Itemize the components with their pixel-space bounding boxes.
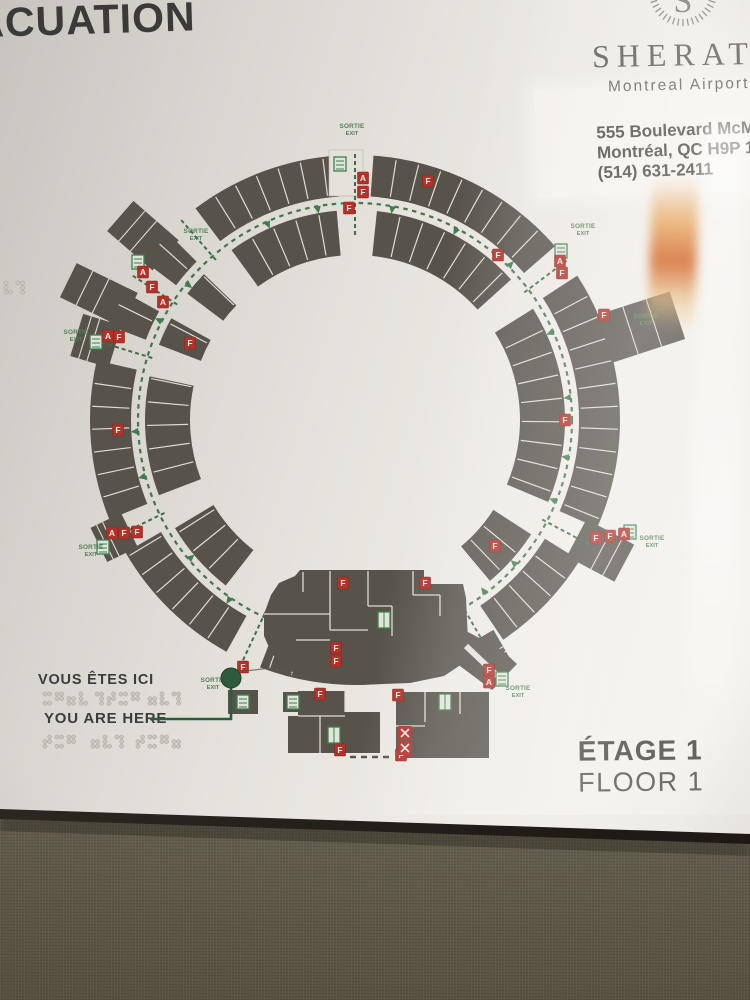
direction-arrow-icon (563, 394, 571, 402)
safety-marker: F (599, 309, 610, 321)
svg-text:F: F (116, 332, 121, 342)
svg-text:F: F (115, 425, 120, 435)
svg-text:F: F (395, 690, 400, 700)
safety-marker: F (484, 664, 495, 676)
safety-marker: A (555, 255, 566, 267)
evacuation-sign-photo: ÉVACUATION SHERATON Montreal Airport Hot… (0, 0, 750, 1000)
svg-text:F: F (340, 578, 345, 588)
exit-label: SORTIEEXIT (571, 223, 597, 237)
room-band-segment (145, 376, 201, 495)
elevator-icon (328, 727, 340, 743)
svg-text:F: F (593, 533, 598, 543)
elevator-icon (439, 694, 451, 710)
svg-text:F: F (317, 689, 322, 699)
room-band-segment (187, 274, 236, 321)
safety-marker: F (132, 526, 143, 538)
safety-marker: F (338, 577, 349, 589)
svg-text:A: A (160, 297, 166, 307)
direction-arrow-icon (478, 585, 488, 595)
exit-label: SORTIEEXIT (640, 535, 666, 549)
safety-marker: A (138, 266, 149, 278)
exit-label: SORTIEEXIT (184, 228, 210, 242)
svg-text:A: A (105, 331, 111, 341)
safety-marker: A (619, 528, 630, 540)
svg-text:F: F (149, 282, 154, 292)
exit-label: SORTIEEXIT (340, 123, 366, 137)
svg-text:F: F (333, 656, 338, 666)
svg-text:F: F (425, 176, 430, 186)
safety-marker: F (113, 424, 124, 436)
safety-marker: A (103, 330, 114, 342)
exit-label: SORTIEEXIT (506, 685, 532, 699)
room-band-segment (495, 309, 565, 502)
stairs-icon (496, 672, 508, 686)
safety-marker: F (420, 577, 431, 589)
safety-marker: F (114, 331, 125, 343)
safety-marker: A (158, 296, 169, 308)
svg-text:F: F (607, 531, 612, 541)
sheraton-monogram: S (674, 0, 693, 20)
safety-marker: A (358, 172, 369, 184)
svg-text:F: F (486, 665, 491, 675)
svg-text:F: F (492, 541, 497, 551)
stairs-icon (287, 695, 299, 709)
svg-text:F: F (360, 187, 365, 197)
safety-marker: F (315, 688, 326, 700)
safety-marker: F (335, 744, 346, 756)
stairs-icon (90, 335, 102, 349)
safety-marker: F (393, 689, 404, 701)
svg-text:F: F (121, 528, 126, 538)
safety-marker: F (331, 642, 342, 654)
svg-text:F: F (240, 662, 245, 672)
svg-text:F: F (422, 578, 427, 588)
elevator-icon (378, 612, 390, 628)
svg-text:F: F (559, 268, 564, 278)
no-elevator-marker (398, 741, 412, 755)
safety-marker: F (493, 249, 504, 261)
svg-text:A: A (486, 677, 492, 687)
safety-marker: F (119, 527, 130, 539)
svg-text:F: F (562, 415, 567, 425)
safety-marker: F (331, 655, 342, 667)
safety-marker: F (185, 337, 196, 349)
safety-marker: F (147, 281, 158, 293)
svg-text:F: F (333, 643, 338, 653)
safety-marker: F (591, 532, 602, 544)
lobby-block (264, 570, 468, 685)
stairs-icon (237, 695, 249, 709)
safety-marker: F (490, 540, 501, 552)
svg-text:A: A (360, 173, 366, 183)
svg-text:F: F (134, 527, 139, 537)
svg-text:A: A (621, 529, 627, 539)
svg-text:A: A (140, 267, 146, 277)
window-reflection-orange (647, 177, 700, 331)
svg-text:F: F (495, 250, 500, 260)
safety-marker: F (605, 530, 616, 542)
safety-marker: F (358, 186, 369, 198)
safety-marker: A (484, 676, 495, 688)
safety-marker: F (423, 175, 434, 187)
svg-text:F: F (346, 203, 351, 213)
stairs-icon (334, 157, 346, 171)
you-are-here-dot (221, 668, 241, 688)
no-elevator-marker (398, 726, 412, 740)
safety-marker: F (557, 267, 568, 279)
svg-text:F: F (337, 745, 342, 755)
svg-text:A: A (557, 256, 563, 266)
safety-marker: F (344, 202, 355, 214)
safety-marker: A (107, 527, 118, 539)
safety-marker: F (560, 414, 571, 426)
svg-text:F: F (601, 310, 606, 320)
svg-text:F: F (187, 338, 192, 348)
svg-text:A: A (109, 528, 115, 538)
direction-arrow-icon (131, 428, 139, 435)
sheraton-wreath-logo: S (649, 0, 717, 26)
